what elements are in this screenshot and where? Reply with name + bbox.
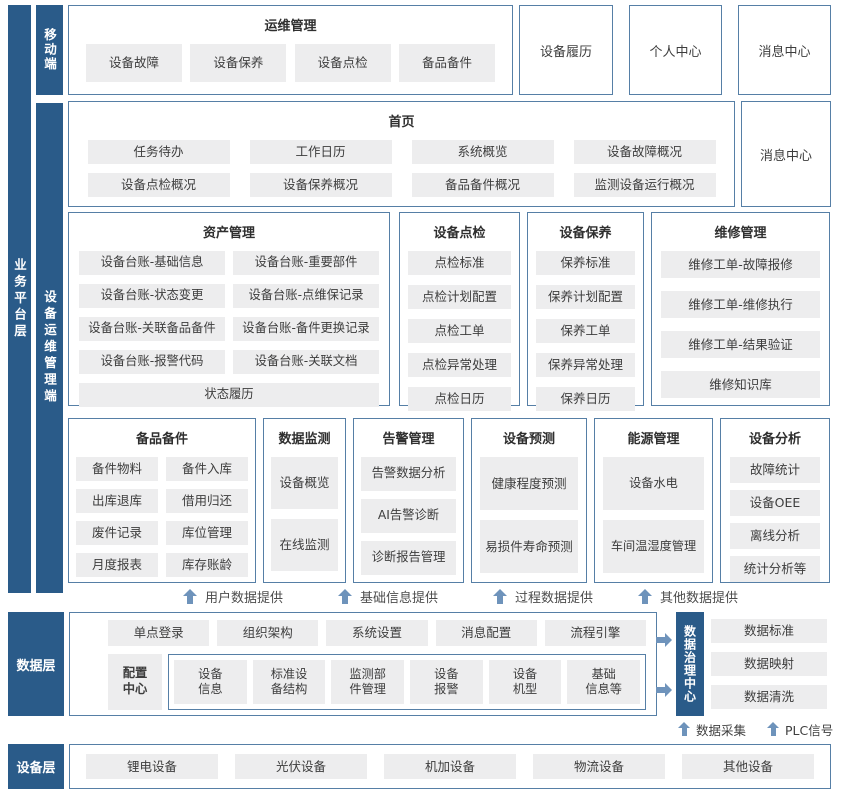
group-title: 资产管理 xyxy=(69,222,389,241)
module-item: 监测部 件管理 xyxy=(331,660,404,704)
data-flow-label: 过程数据提供 xyxy=(493,587,593,605)
plc-label: PLC信号 xyxy=(785,720,833,739)
personal-center-box: 个人中心 xyxy=(629,5,722,95)
maintenance-module: 设备保养 保养标准 保养计划配置 保养工单 保养异常处理 保养日历 xyxy=(527,212,644,406)
module-item: 流程引擎 xyxy=(545,620,646,646)
device-om-client-bar: 设备运维管理端 xyxy=(36,103,63,593)
module-item: 设备台账-点维保记录 xyxy=(233,284,379,308)
module-item: 备件入库 xyxy=(166,457,248,481)
module-item: 保养异常处理 xyxy=(536,353,635,377)
config-items-box: 设备 信息 标准设 备结构 监测部 件管理 设备 报警 设备 机型 基础 信息等 xyxy=(168,654,646,710)
module-item: 库存账龄 xyxy=(166,553,248,577)
module-item: 点检工单 xyxy=(408,319,511,343)
data-flow-label: 其他数据提供 xyxy=(638,587,738,605)
group-title: 能源管理 xyxy=(595,428,712,447)
module-item: 机加设备 xyxy=(384,754,516,779)
right-arrow-icon xyxy=(656,683,672,697)
message-center-box: 消息中心 xyxy=(741,101,831,207)
module-item: 光伏设备 xyxy=(235,754,367,779)
module-item: 标准设 备结构 xyxy=(253,660,326,704)
module-item: 设备保养概况 xyxy=(250,173,392,197)
module-item: 保养工单 xyxy=(536,319,635,343)
module-item: 统计分析等 xyxy=(730,556,820,582)
module-item: 设备台账-备件更换记录 xyxy=(233,317,379,341)
module-item: 借用归还 xyxy=(166,489,248,513)
asset-management-module: 资产管理 设备台账-基础信息 设备台账-重要部件 设备台账-状态变更 设备台账-… xyxy=(68,212,390,406)
module-item: 状态履历 xyxy=(79,383,379,407)
ops-management-group: 运维管理 设备故障 设备保养 设备点检 备品备件 xyxy=(68,5,513,95)
module-item: 设备台账-重要部件 xyxy=(233,251,379,275)
module-item: 维修工单-结果验证 xyxy=(661,331,820,358)
group-title: 首页 xyxy=(69,111,734,130)
base-support-group: 单点登录 组织架构 系统设置 消息配置 流程引擎 配置 中心 设备 信息 标准设… xyxy=(69,612,657,716)
module-item: 健康程度预测 xyxy=(480,457,578,510)
module-item: 告警数据分析 xyxy=(361,457,456,491)
module-item: 设备点检概况 xyxy=(88,173,230,197)
up-arrow-icon xyxy=(678,722,690,736)
module-item: 点检标准 xyxy=(408,251,511,275)
module-item: 设备故障概况 xyxy=(574,140,716,164)
energy-management-module: 能源管理 设备水电 车间温湿度管理 xyxy=(594,418,713,583)
data-flow-label: 用户数据提供 xyxy=(183,587,283,605)
data-layer-bar: 数据层 xyxy=(8,612,64,716)
up-arrow-icon xyxy=(183,589,197,604)
module-item: 废件记录 xyxy=(76,521,158,545)
data-governance-bar: 数据治理中心 xyxy=(676,612,704,716)
home-group: 首页 任务待办 工作日历 系统概览 设备故障概况 设备点检概况 设备保养概况 备… xyxy=(68,101,735,207)
device-layer-bar: 设备层 xyxy=(8,744,64,789)
module-item: 任务待办 xyxy=(88,140,230,164)
module-item: 设备水电 xyxy=(603,457,704,510)
module-item: 点检异常处理 xyxy=(408,353,511,377)
module-item: 月度报表 xyxy=(76,553,158,577)
module-item: 保养标准 xyxy=(536,251,635,275)
repair-management-module: 维修管理 维修工单-故障报修 维修工单-维修执行 维修工单-结果验证 维修知识库 xyxy=(651,212,830,406)
module-item: 故障统计 xyxy=(730,457,820,483)
module-item: 维修工单-故障报修 xyxy=(661,251,820,278)
group-title: 设备预测 xyxy=(472,428,586,447)
group-title: 维修管理 xyxy=(652,222,829,241)
data-governance-items: 数据标准 数据映射 数据清洗 xyxy=(706,612,832,716)
group-title: 设备分析 xyxy=(721,428,829,447)
module-item: 备品备件 xyxy=(399,44,495,82)
module-item: 保养日历 xyxy=(536,387,635,411)
module-item: 系统概览 xyxy=(412,140,554,164)
group-title: 备品备件 xyxy=(69,428,255,447)
module-item: 在线监测 xyxy=(271,519,338,571)
module-item: 库位管理 xyxy=(166,521,248,545)
mobile-layer-bar: 移动端 xyxy=(36,5,63,95)
module-item: 锂电设备 xyxy=(86,754,218,779)
device-layer-group: 锂电设备 光伏设备 机加设备 物流设备 其他设备 xyxy=(69,744,831,789)
module-item: 设备故障 xyxy=(86,44,182,82)
module-item: 基础 信息等 xyxy=(567,660,640,704)
flow-label: 用户数据提供 xyxy=(205,587,283,606)
flow-label: 基础信息提供 xyxy=(360,587,438,606)
module-item: 设备 机型 xyxy=(489,660,562,704)
module-item: 备品备件概况 xyxy=(412,173,554,197)
module-item: 诊断报告管理 xyxy=(361,541,456,575)
module-item: 数据清洗 xyxy=(711,685,827,709)
flow-label: 其他数据提供 xyxy=(660,587,738,606)
device-analysis-module: 设备分析 故障统计 设备OEE 离线分析 统计分析等 xyxy=(720,418,830,583)
group-title: 运维管理 xyxy=(69,15,512,34)
module-item: 设备台账-关联文档 xyxy=(233,350,379,374)
right-arrow-icon xyxy=(656,633,672,647)
module-item: 其他设备 xyxy=(682,754,814,779)
data-monitoring-module: 数据监测 设备概览 在线监测 xyxy=(263,418,346,583)
message-center-box: 消息中心 xyxy=(738,5,831,95)
module-item: 出库退库 xyxy=(76,489,158,513)
group-title: 设备点检 xyxy=(400,222,519,241)
module-item: 数据映射 xyxy=(711,652,827,676)
group-title: 设备保养 xyxy=(528,222,643,241)
data-collect-label: 数据采集 xyxy=(678,721,746,737)
module-item: 设备台账-报警代码 xyxy=(79,350,225,374)
module-item: 数据标准 xyxy=(711,619,827,643)
module-item: 保养计划配置 xyxy=(536,285,635,309)
module-item: 设备保养 xyxy=(190,44,286,82)
module-item: 组织架构 xyxy=(217,620,318,646)
group-title: 数据监测 xyxy=(264,428,345,447)
module-item: 设备点检 xyxy=(295,44,391,82)
module-item: 设备 信息 xyxy=(174,660,247,704)
module-item: AI告警诊断 xyxy=(361,499,456,533)
module-item: 维修知识库 xyxy=(661,371,820,398)
spare-parts-module: 备品备件 备件物料 备件入库 出库退库 借用归还 废件记录 库位管理 月度报表 … xyxy=(68,418,256,583)
module-item: 单点登录 xyxy=(108,620,209,646)
module-item: 易损件寿命预测 xyxy=(480,520,578,573)
module-item: 工作日历 xyxy=(250,140,392,164)
module-item: 监测设备运行概况 xyxy=(574,173,716,197)
config-center-cell: 配置 中心 xyxy=(108,654,162,710)
flow-label: 过程数据提供 xyxy=(515,587,593,606)
up-arrow-icon xyxy=(338,589,352,604)
module-item: 点检日历 xyxy=(408,387,511,411)
group-title: 告警管理 xyxy=(354,428,463,447)
module-item: 系统设置 xyxy=(326,620,427,646)
module-item: 设备OEE xyxy=(730,490,820,516)
module-item: 设备 报警 xyxy=(410,660,483,704)
up-arrow-icon xyxy=(638,589,652,604)
module-item: 设备台账-关联备品备件 xyxy=(79,317,225,341)
module-item: 离线分析 xyxy=(730,523,820,549)
module-item: 备件物料 xyxy=(76,457,158,481)
architecture-diagram: 业务平台层 移动端 设备运维管理端 数据层 基础支撑 设备层 运维管理 设备故障… xyxy=(0,0,841,794)
collect-label: 数据采集 xyxy=(696,720,746,739)
module-item: 设备台账-基础信息 xyxy=(79,251,225,275)
module-item: 设备台账-状态变更 xyxy=(79,284,225,308)
module-item: 消息配置 xyxy=(436,620,537,646)
up-arrow-icon xyxy=(493,589,507,604)
module-item: 车间温湿度管理 xyxy=(603,520,704,573)
device-prediction-module: 设备预测 健康程度预测 易损件寿命预测 xyxy=(471,418,587,583)
plc-signal-label: PLC信号 xyxy=(767,721,833,737)
module-item: 维修工单-维修执行 xyxy=(661,291,820,318)
module-item: 设备概览 xyxy=(271,457,338,509)
module-item: 物流设备 xyxy=(533,754,665,779)
module-item: 点检计划配置 xyxy=(408,285,511,309)
inspection-module: 设备点检 点检标准 点检计划配置 点检工单 点检异常处理 点检日历 xyxy=(399,212,520,406)
business-platform-layer-bar: 业务平台层 xyxy=(8,5,31,593)
up-arrow-icon xyxy=(767,722,779,736)
device-history-box: 设备履历 xyxy=(519,5,613,95)
data-flow-label: 基础信息提供 xyxy=(338,587,438,605)
alarm-management-module: 告警管理 告警数据分析 AI告警诊断 诊断报告管理 xyxy=(353,418,464,583)
